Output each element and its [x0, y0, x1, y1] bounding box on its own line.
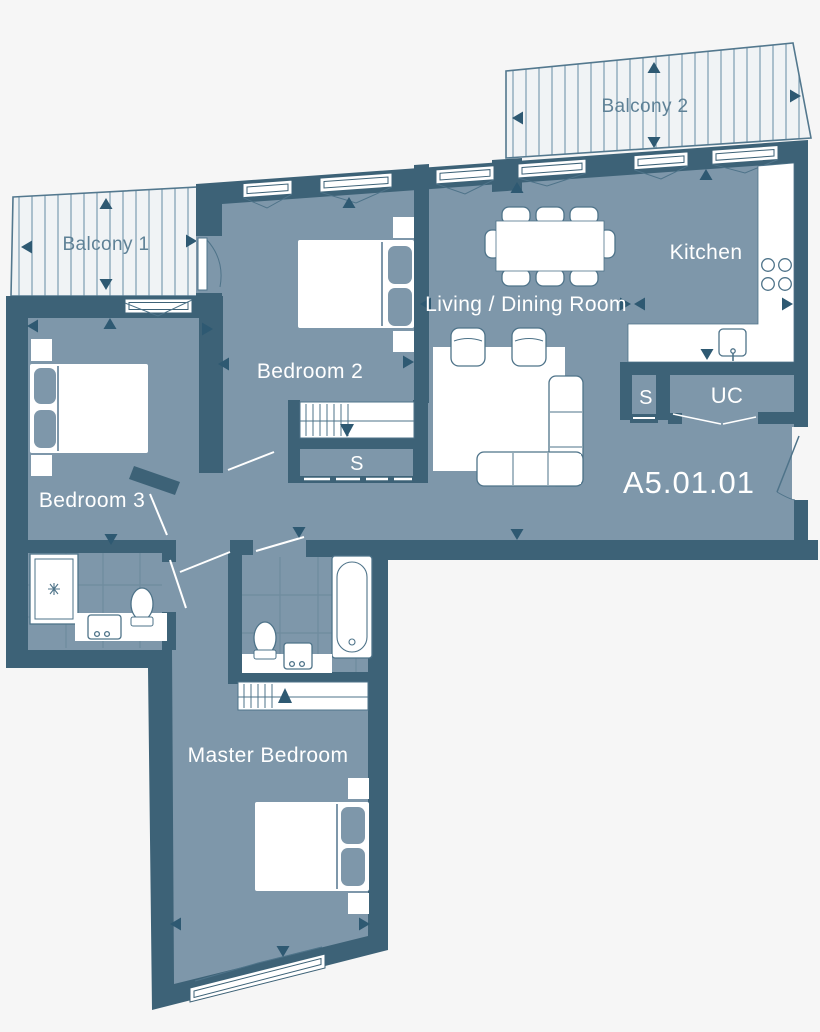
wardrobe — [300, 402, 414, 438]
pillow — [341, 848, 365, 886]
balcony-door — [196, 236, 224, 293]
pillow — [34, 368, 56, 404]
kitchen-label: Kitchen — [670, 241, 743, 264]
dining-table — [485, 207, 615, 286]
toilet — [131, 588, 153, 620]
bedroom-2-label: Bedroom 2 — [257, 360, 363, 383]
pillow — [341, 807, 365, 844]
wardrobe — [238, 682, 368, 710]
living-dining-label: Living / Dining Room — [425, 293, 627, 316]
hob-icon — [779, 259, 792, 272]
utility-cupboard-label: UC — [711, 383, 744, 408]
pillow — [388, 288, 412, 326]
nightstand — [31, 455, 52, 476]
storage-label: S — [350, 453, 364, 475]
master-bedroom-label: Master Bedroom — [188, 744, 349, 767]
balcony-2: Balcony 2 — [506, 43, 811, 158]
balcony-2-label: Balcony 2 — [601, 96, 688, 117]
hob-icon — [762, 259, 775, 272]
unit-number: A5.01.01 — [623, 465, 755, 500]
bedroom-3-label: Bedroom 3 — [39, 489, 145, 512]
dining-chair — [536, 269, 564, 286]
armchair — [512, 328, 546, 366]
floor-plan: Balcony 2 Balcony 1 — [0, 0, 820, 1032]
nightstand — [348, 893, 369, 914]
dining-chair — [570, 269, 598, 286]
nightstand — [348, 778, 369, 799]
balcony-1: Balcony 1 — [11, 187, 198, 296]
nightstand — [393, 217, 414, 238]
hob-icon — [762, 278, 775, 291]
hob-icon — [779, 278, 792, 291]
armchair — [451, 328, 485, 366]
nightstand — [393, 331, 414, 352]
toilet — [254, 622, 276, 654]
nightstand — [31, 339, 52, 361]
window — [125, 299, 192, 316]
dining-chair — [502, 269, 530, 286]
storage-label: S — [639, 387, 653, 409]
pillow — [388, 246, 412, 284]
washbasin — [284, 643, 312, 669]
balcony-1-label: Balcony 1 — [62, 234, 149, 255]
floor-plan-drawing: Balcony 2 Balcony 1 — [0, 0, 820, 1032]
pillow — [34, 410, 56, 448]
